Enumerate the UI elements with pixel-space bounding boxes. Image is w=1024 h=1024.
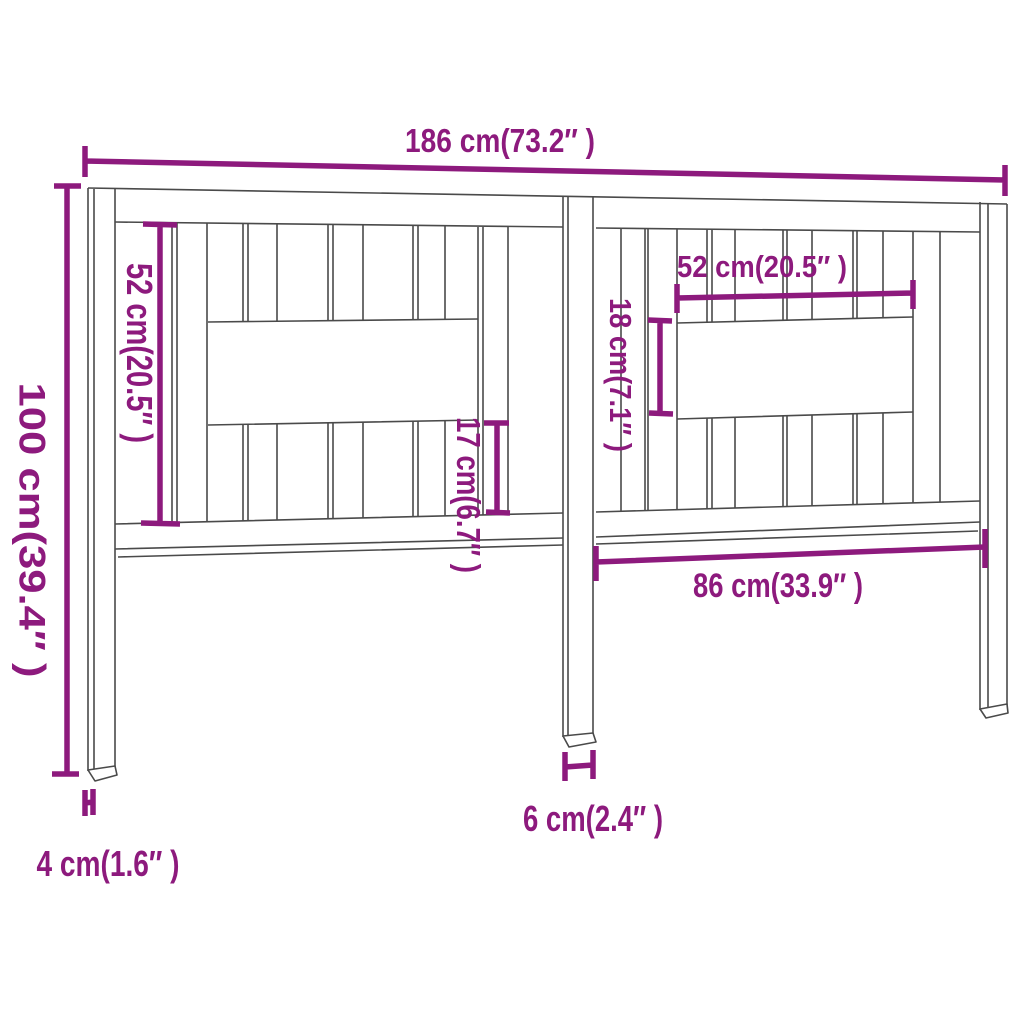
- left-opening-edges: [208, 319, 478, 425]
- label-center-leg-width: 6 cm(2.4″ ): [523, 798, 663, 839]
- middle-leg-foot: [563, 733, 596, 747]
- label-left-panel-height: 52 cm(20.5″ ): [119, 263, 160, 443]
- label-total-width: 186 cm(73.2″ ): [405, 122, 595, 159]
- right-post: [980, 202, 1007, 712]
- dim-total-height-line: [52, 186, 81, 774]
- dim-right-opening-height-line: [648, 320, 673, 414]
- headboard-top-edge: [88, 188, 1007, 204]
- right-leg-foot: [980, 704, 1008, 718]
- top-rail-bottom-edge: [115, 222, 980, 232]
- right-opening-edges: [677, 317, 913, 419]
- dim-center-leg-width-line: [565, 750, 593, 781]
- label-right-opening-width: 52 cm(20.5″ ): [677, 249, 847, 284]
- dimension-lines: [52, 146, 1005, 816]
- label-right-opening-height: 18 cm(7.1″ ): [603, 298, 638, 452]
- dim-outer-leg-width-line: [85, 789, 93, 816]
- slat-lines-left-upper-lower: [243, 224, 445, 521]
- bottom-rail: [115, 501, 980, 557]
- left-post: [88, 188, 115, 773]
- middle-stile: [563, 196, 593, 739]
- headboard-dimension-diagram: 186 cm(73.2″ ) 100 cm(39.4″ ) 52 cm(20.5…: [0, 0, 1024, 1024]
- label-outer-leg-width: 4 cm(1.6″ ): [37, 843, 180, 884]
- label-center-lower-height: 17 cm(6.7″ ): [450, 417, 487, 573]
- dimension-diagram-page: 186 cm(73.2″ ) 100 cm(39.4″ ) 52 cm(20.5…: [0, 0, 1024, 1024]
- left-leg-foot: [88, 766, 117, 781]
- label-total-height: 100 cm(39.4″ ): [12, 383, 53, 678]
- label-leg-span: 86 cm(33.9″ ): [693, 567, 863, 605]
- headboard-outline: [88, 188, 1008, 781]
